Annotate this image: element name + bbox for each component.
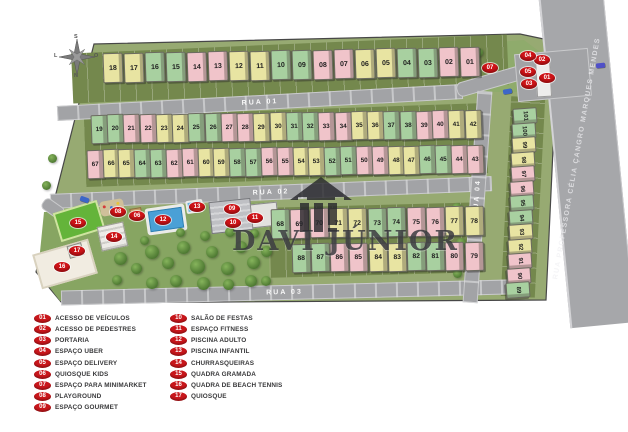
house-lot-16: 16 [144,52,165,83]
house-lot-number: 67 [91,160,98,167]
house-lot-number: 28 [242,124,249,131]
house-lot-number: 62 [171,159,178,166]
house-lot-number: 77 [451,218,459,225]
house-lot-number: 41 [453,121,460,128]
legend-item-06: 06QUIOSQUE KIDS [34,369,147,380]
site-plan-map: RUA PROFESSORA CÉLIA ÇANGRO MARQUES MEND… [0,0,628,312]
legend-badge: 05 [34,359,51,368]
amenity-marker-09: 09 [224,204,240,214]
house-lot-number: 43 [471,156,478,163]
house-roof-shade [265,51,269,79]
house-lot-63: 63 [150,148,168,178]
house-lot-18: 18 [102,53,123,84]
tree-icon [176,228,185,237]
legend-item-09: 09ESPAÇO GOURMET [34,402,147,413]
house-lot-number: 93 [517,228,523,235]
house-lot-62: 62 [165,148,183,178]
house-lot-number: 59 [218,159,225,166]
compass-left-label: L [54,53,57,59]
amenity-marker-06: 06 [129,211,145,221]
house-lot-number: 34 [339,122,346,129]
tree-icon [206,246,218,258]
house-lot-19: 19 [90,114,108,144]
house-roof-shade [307,51,311,79]
house-roof-shade [454,48,458,76]
house-lot-number: 38 [404,122,411,129]
house-lot-number: 51 [345,157,352,164]
house-lot-number: 05 [382,60,390,67]
legend-label: PLAYGROUND [55,393,101,400]
house-lot-number: 12 [235,62,243,69]
legend-badge: 11 [170,325,187,334]
legend-label: PORTARIA [55,337,89,344]
legend-label: QUIOSQUE [191,393,227,400]
house-lot-05: 05 [375,48,396,79]
road-label-rua-03: RUA 03 [266,288,303,296]
compass-rose-icon: S N L O [56,36,98,78]
house-lot-30: 30 [269,112,287,142]
house-lot-number: 76 [431,218,439,225]
davi-junior-watermark: DAVI JÚNIOR [232,226,448,257]
legend-item-05: 05ESPAÇO DELIVERY [34,358,147,369]
legend-item-08: 08PLAYGROUND [34,391,147,402]
house-lot-number: 94 [518,214,524,221]
house-lot-number: 37 [388,122,395,129]
house-lot-number: 01 [466,58,474,65]
house-roof-shade [265,113,269,140]
legend-label: PISCINA INFANTIL [191,348,250,355]
house-lot-43: 43 [466,144,484,174]
house-lot-number: 91 [516,257,522,264]
legend-label: QUADRA GRAMADA [191,371,256,378]
house-lot-number: 95 [518,199,524,206]
house-lot-14: 14 [186,51,207,82]
house-lot-number: 11 [256,62,264,69]
legend-label: QUADRA DE BEACH TENNIS [191,382,282,389]
legend-label: ESPAÇO UBER [55,348,103,355]
house-lot-number: 17 [130,64,138,71]
house-lot-02: 02 [438,47,459,78]
house-lot-number: 92 [517,243,523,250]
tree-icon [131,263,142,274]
legend-item-15: 15QUADRA GRAMADA [170,369,282,380]
house-lot-32: 32 [302,112,320,142]
house-lot-23: 23 [155,113,173,143]
house-lot-number: 100 [521,125,528,135]
house-lot-10: 10 [270,50,291,81]
house-lot-61: 61 [181,148,199,178]
house-lot-38: 38 [399,110,417,140]
house-lot-07: 07 [333,49,354,80]
house-lot-number: 64 [139,160,146,167]
house-lot-number: 101 [522,111,529,121]
house-lot-number: 55 [281,158,288,165]
tree-icon [162,257,174,269]
legend-badge: 04 [34,347,51,356]
house-lot-41: 41 [448,110,466,140]
house-lot-34: 34 [334,111,352,141]
house-lot-21: 21 [123,114,141,144]
legend-badge: 06 [34,370,51,379]
house-lot-number: 32 [307,123,314,130]
house-lot-09: 09 [291,50,312,81]
legend-label: CHURRASQUEIRAS [191,360,254,367]
tree-icon [223,279,234,290]
house-lot-number: 45 [440,156,447,163]
house-roof-shade [160,53,164,81]
house-lot-number: 54 [297,158,304,165]
house-lot-39: 39 [415,110,433,140]
tree-icon [177,241,190,254]
compass-top-label: S [74,34,78,40]
house-lot-35: 35 [350,111,368,141]
house-roof-shade [433,48,437,76]
house-lot-number: 22 [144,125,151,132]
house-lot-57: 57 [245,147,263,177]
house-lot-44: 44 [450,145,468,175]
house-lot-number: 63 [155,160,162,167]
house-lot-number: 36 [372,122,379,129]
house-lot-number: 20 [112,125,119,132]
house-lot-number: 25 [193,124,200,131]
legend-label: ESPAÇO FITNESS [191,326,248,333]
legend-label: ACESSO DE PEDESTRES [55,326,136,333]
house-lot-42: 42 [464,110,482,140]
house-lot-number: 53 [313,158,320,165]
house-lot-04: 04 [396,48,417,79]
house-lot-number: 33 [323,123,330,130]
house-lot-number: 97 [520,170,526,177]
house-lot-12: 12 [228,51,249,82]
house-lot-number: 08 [319,61,327,68]
house-lot-15: 15 [165,52,186,83]
house-lot-50: 50 [355,146,373,176]
tree-icon [146,277,158,289]
compass-right-label: O [94,53,98,59]
amenity-marker-08: 08 [110,207,126,217]
house-roof-shade [223,52,227,80]
house-lot-number: 24 [177,124,184,131]
legend-item-12: 12PISCINA ADULTO [170,335,282,346]
tree-icon [245,275,257,287]
house-roof-shade [328,50,332,78]
house-lot-58: 58 [229,147,247,177]
house-lot-number: 40 [437,121,444,128]
legend-badge: 09 [34,403,51,412]
legend-badge: 15 [170,370,187,379]
house-roof-shade [202,52,206,80]
amenity-marker-04: 04 [520,51,536,61]
house-lot-89: 89 [506,281,531,299]
house-lot-56: 56 [260,147,278,177]
legend: 01ACESSO DE VEÍCULOS02ACESSO DE PEDESTRE… [34,313,594,423]
amenity-marker-13: 13 [189,202,205,212]
house-lot-number: 18 [109,64,117,71]
house-roof-shade [135,115,139,142]
house-roof-shade [478,242,482,269]
tree-icon [42,181,51,190]
house-roof-shade [412,49,416,77]
house-roof-shade [370,49,374,77]
tree-icon [261,276,271,286]
tree-icon [200,231,210,241]
legend-label: ACESSO DE VEÍCULOS [55,315,130,322]
amenity-marker-03: 03 [521,79,537,89]
house-lot-number: 14 [193,63,201,70]
tree-icon [170,275,182,287]
house-roof-shade [475,48,479,76]
house-lot-number: 61 [186,159,193,166]
house-lot-64: 64 [134,149,152,179]
house-lot-79: 79 [464,241,483,270]
house-lot-51: 51 [340,146,358,176]
house-lot-number: 35 [356,122,363,129]
legend-badge: 03 [34,336,51,345]
house-lot-number: 26 [209,124,216,131]
legend-badge: 07 [34,381,51,390]
amenity-marker-02: 02 [534,55,550,65]
house-lot-number: 03 [424,59,432,66]
house-lot-number: 21 [128,125,135,132]
legend-label: PISCINA ADULTO [191,337,246,344]
house-roof-shade [508,293,530,298]
legend-badge: 01 [34,314,51,323]
house-lot-27: 27 [220,113,238,143]
legend-item-14: 14CHURRASQUEIRAS [170,358,282,369]
amenity-marker-07: 07 [482,63,498,73]
tree-icon [114,252,127,265]
legend-item-02: 02ACESSO DE PEDESTRES [34,324,147,335]
house-lot-number: 79 [470,253,478,260]
house-lot-55: 55 [276,147,294,177]
house-lot-number: 89 [515,286,521,293]
house-lot-number: 10 [277,62,285,69]
legend-label: ESPAÇO DELIVERY [55,360,117,367]
amenity-marker-17: 17 [69,246,85,256]
house-lot-number: 30 [274,123,281,130]
house-lot-number: 47 [408,156,415,163]
house-lot-number: 44 [455,156,462,163]
house-lot-number: 23 [160,125,167,132]
house-roof-shade [118,54,122,82]
house-lot-26: 26 [204,113,222,143]
house-roof-shade [459,207,463,235]
legend-badge: 02 [34,325,51,334]
legend-item-04: 04ESPAÇO UBER [34,346,147,357]
house-lot-11: 11 [249,50,270,81]
house-lot-36: 36 [367,111,385,141]
tree-icon [112,275,122,285]
amenity-marker-14: 14 [106,232,122,242]
amenity-marker-11: 11 [247,213,263,223]
house-roof-shade [286,51,290,79]
legend-badge: 17 [170,392,187,401]
legend-column-2: 10SALÃO DE FESTAS11ESPAÇO FITNESS12PISCI… [170,313,282,402]
tree-icon [221,262,234,275]
house-lot-13: 13 [207,51,228,82]
house-lot-40: 40 [432,110,450,140]
house-lot-number: 65 [123,160,130,167]
house-lot-number: 98 [520,156,526,163]
house-lot-22: 22 [139,114,157,144]
road-label-rua-02: RUA 02 [253,188,290,196]
house-lot-number: 96 [519,185,525,192]
house-lot-number: 07 [340,61,348,68]
legend-badge: 08 [34,392,51,401]
legend-item-07: 07ESPAÇO PARA MINIMARKET [34,380,147,391]
house-lot-number: 74 [393,219,401,226]
car [596,63,605,69]
tree-icon [197,277,210,290]
house-lot-number: 09 [298,61,306,68]
house-lot-37: 37 [383,111,401,141]
legend-column-1: 01ACESSO DE VEÍCULOS02ACESSO DE PEDESTRE… [34,313,147,413]
house-lot-number: 78 [470,217,478,224]
amenity-marker-01: 01 [539,73,555,83]
house-lot-45: 45 [434,145,452,175]
house-lot-31: 31 [285,112,303,142]
compass-bottom-label: N [74,73,78,79]
house-lot-25: 25 [188,113,206,143]
house-lot-03: 03 [417,47,438,78]
legend-badge: 12 [170,336,187,345]
house-lot-number: 56 [265,158,272,165]
house-lot-number: 46 [424,156,431,163]
house-lot-01: 01 [459,47,480,78]
house-lot-49: 49 [371,146,389,176]
house-lot-number: 99 [521,141,527,148]
amenity-marker-16: 16 [54,262,70,272]
legend-badge: 10 [170,314,187,323]
house-lot-17: 17 [123,52,144,83]
tree-icon [48,154,57,163]
legend-badge: 13 [170,347,187,356]
house-lot-08: 08 [312,49,333,80]
house-lot-number: 60 [202,159,209,166]
house-lot-number: 27 [225,124,232,131]
house-roof-shade [139,53,143,81]
house-roof-shade [244,52,248,80]
house-lot-20: 20 [106,114,124,144]
house-lot-number: 39 [421,121,428,128]
legend-item-11: 11ESPAÇO FITNESS [170,324,282,335]
house-lot-67: 67 [86,149,104,179]
house-lot-24: 24 [172,113,190,143]
house-lot-number: 57 [250,158,257,165]
legend-label: ESPAÇO PARA MINIMARKET [55,382,147,389]
house-roof-shade [349,50,353,78]
house-roof-shade [181,53,185,81]
legend-item-10: 10SALÃO DE FESTAS [170,313,282,324]
house-lot-number: 13 [214,63,222,70]
house-roof-shade [391,49,395,77]
tree-icon [145,245,159,259]
legend-item-01: 01ACESSO DE VEÍCULOS [34,313,147,324]
house-lot-number: 66 [107,160,114,167]
house-lot-number: 15 [172,63,180,70]
tree-icon [190,259,205,274]
house-lot-number: 19 [95,125,102,132]
house-lot-number: 49 [376,157,383,164]
house-lot-29: 29 [253,112,271,142]
house-lot-number: 31 [290,123,297,130]
amenity-marker-05: 05 [520,67,536,77]
house-lot-number: 29 [258,123,265,130]
house-lot-number: 06 [361,60,369,67]
house-lot-46: 46 [419,145,437,175]
house-lot-number: 02 [445,59,453,66]
tree-icon [247,256,260,269]
legend-badge: 16 [170,381,187,390]
house-lot-number: 58 [234,159,241,166]
house-lot-number: 04 [403,59,411,66]
house-lot-52: 52 [324,146,342,176]
legend-label: SALÃO DE FESTAS [191,315,253,322]
legend-item-03: 03PORTARIA [34,335,147,346]
legend-item-16: 16QUADRA DE BEACH TENNIS [170,380,282,391]
tree-icon [140,236,149,245]
house-lot-33: 33 [318,111,336,141]
amenity-marker-15: 15 [70,218,86,228]
legend-item-13: 13PISCINA INFANTIL [170,346,282,357]
house-lot-06: 06 [354,48,375,79]
legend-badge: 14 [170,359,187,368]
legend-item-17: 17QUIOSQUE [170,391,282,402]
house-lot-number: 90 [516,272,522,279]
house-lot-78: 78 [464,206,483,236]
house-lot-number: 16 [151,64,159,71]
legend-label: ESPAÇO GOURMET [55,404,118,411]
amenity-marker-12: 12 [155,215,171,225]
house-roof-shade [200,114,204,141]
house-roof-shade [459,243,463,270]
house-roof-shade [478,207,482,235]
house-lot-number: 42 [469,121,476,128]
house-lot-number: 50 [360,157,367,164]
site-plan-screenshot: RUA PROFESSORA CÉLIA ÇANGRO MARQUES MEND… [0,0,628,432]
legend-label: QUIOSQUE KIDS [55,371,108,378]
house-lot-number: 75 [412,218,420,225]
road-label-rua-01: RUA 01 [242,98,279,107]
house-lot-28: 28 [237,112,255,142]
house-lot-number: 48 [392,157,399,164]
house-lot-number: 52 [329,157,336,164]
